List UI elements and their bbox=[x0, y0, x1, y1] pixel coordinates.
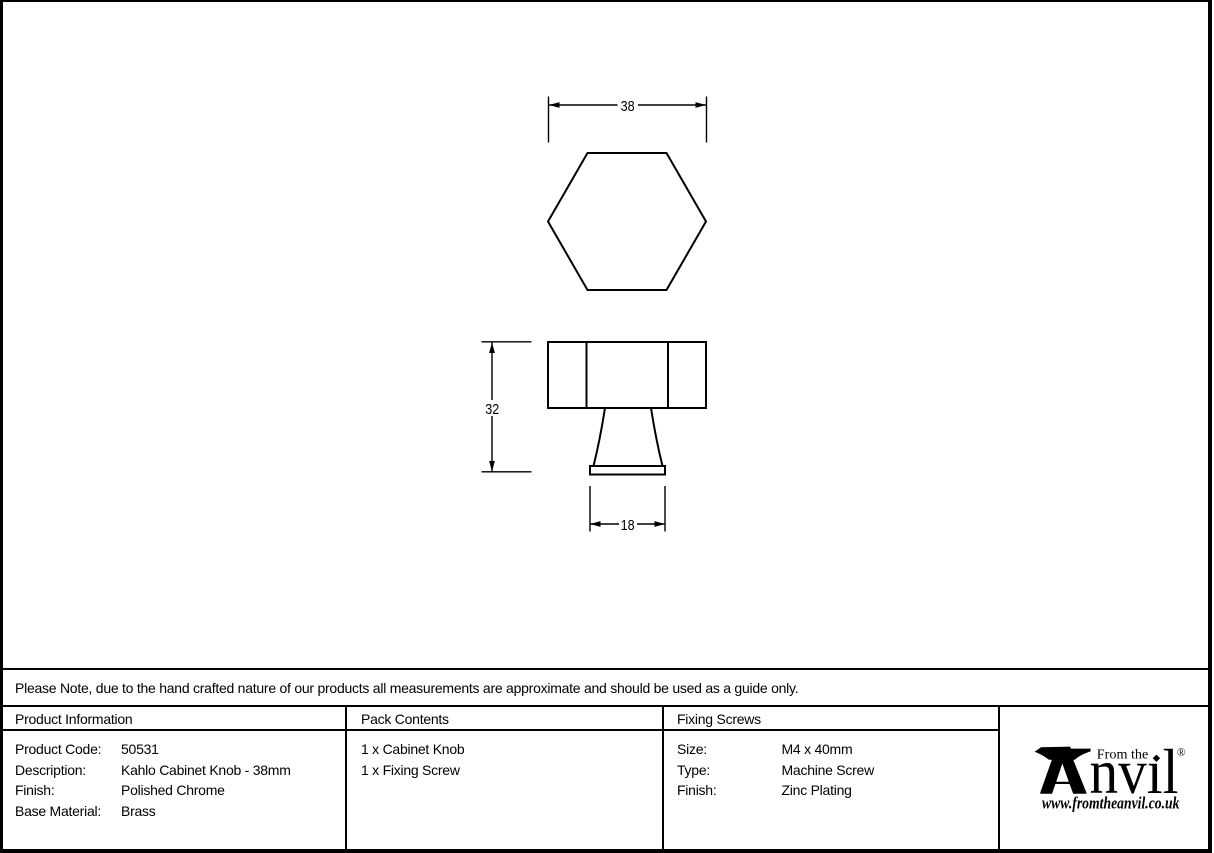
svg-text:®: ® bbox=[1177, 747, 1186, 759]
svg-text:32: 32 bbox=[485, 401, 499, 418]
svg-text:38: 38 bbox=[621, 98, 635, 115]
svg-text:From the: From the bbox=[1097, 747, 1149, 762]
svg-text:18: 18 bbox=[621, 517, 635, 534]
svg-text:www.fromtheanvil.co.uk: www.fromtheanvil.co.uk bbox=[1042, 794, 1180, 813]
